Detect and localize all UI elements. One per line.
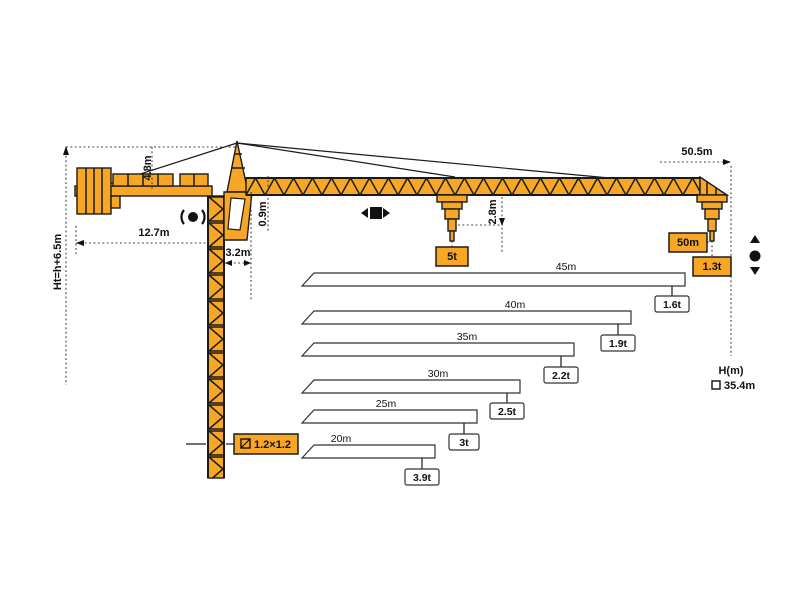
hook-height-value: 35.4m (724, 380, 755, 392)
hoist-icon (750, 235, 761, 275)
bar-length-label: 35m (457, 331, 478, 343)
trolley-hook-mid (437, 195, 467, 241)
tower-mast (208, 196, 224, 478)
jib-tip (700, 177, 727, 195)
bar-length-label: 25m (376, 398, 397, 410)
crane-load-diagram: Ht=h+6.5m 12.7m 4.8m 3.2m 0.9m 2.8m 50.5… (0, 0, 800, 600)
capacity-bars: 45m 1.6t 40m 1.9t 35m 2.2t 30m 2.5t (302, 261, 689, 485)
dim-counter-jib: 12.7m (76, 226, 207, 254)
slewing-icon (181, 210, 204, 224)
bar-load-label: 1.6t (663, 299, 682, 311)
hook-height-legend: H(m) 35.4m (712, 365, 755, 392)
bar-load-label: 2.5t (498, 406, 517, 418)
trolley-icon (361, 207, 390, 219)
jib-section-label: 0.9m (257, 201, 269, 226)
tip-load-label: 1.3t (703, 261, 722, 273)
operator-cab (224, 192, 252, 240)
tower-crane (75, 141, 727, 478)
max-load-badge: 5t (436, 247, 468, 266)
mast-section-label: 1.2×1.2 (254, 439, 291, 451)
tower-head-label: 4.8m (142, 155, 154, 180)
counter-jib-label: 12.7m (138, 227, 169, 239)
bar-length-label: 20m (331, 433, 352, 445)
tip-radius-label: 50m (677, 237, 699, 249)
diagram-canvas: Ht=h+6.5m 12.7m 4.8m 3.2m 0.9m 2.8m 50.5… (0, 0, 800, 600)
bar-length-label: 45m (556, 261, 577, 273)
tip-radius-badge: 50m (669, 233, 707, 252)
tip-load-badge: 1.3t (693, 257, 731, 276)
jib-radius-label: 50.5m (681, 146, 712, 158)
main-jib (246, 177, 727, 195)
slew-offset-label: 3.2m (225, 247, 250, 259)
bar-load-label: 2.2t (552, 370, 571, 382)
dim-hook-clearance: 2.8m (458, 197, 505, 252)
bar-25m: 25m 3t (302, 398, 479, 450)
hook-height-axis-label: H(m) (718, 365, 743, 377)
bar-load-label: 3t (459, 437, 469, 449)
bar-length-label: 30m (428, 368, 449, 380)
hook-clearance-label: 2.8m (487, 199, 499, 224)
bar-length-label: 40m (505, 299, 526, 311)
bar-20m: 20m 3.9t (302, 433, 439, 485)
tower-head (227, 141, 248, 192)
bar-load-label: 1.9t (609, 338, 628, 350)
max-load-label: 5t (447, 251, 457, 263)
bar-45m: 45m 1.6t (302, 261, 689, 312)
total-height-label: Ht=h+6.5m (52, 234, 64, 290)
hook-height-marker-icon (712, 381, 720, 389)
mast-section-badge: 1.2×1.2 (234, 434, 298, 454)
bar-load-label: 3.9t (413, 472, 432, 484)
